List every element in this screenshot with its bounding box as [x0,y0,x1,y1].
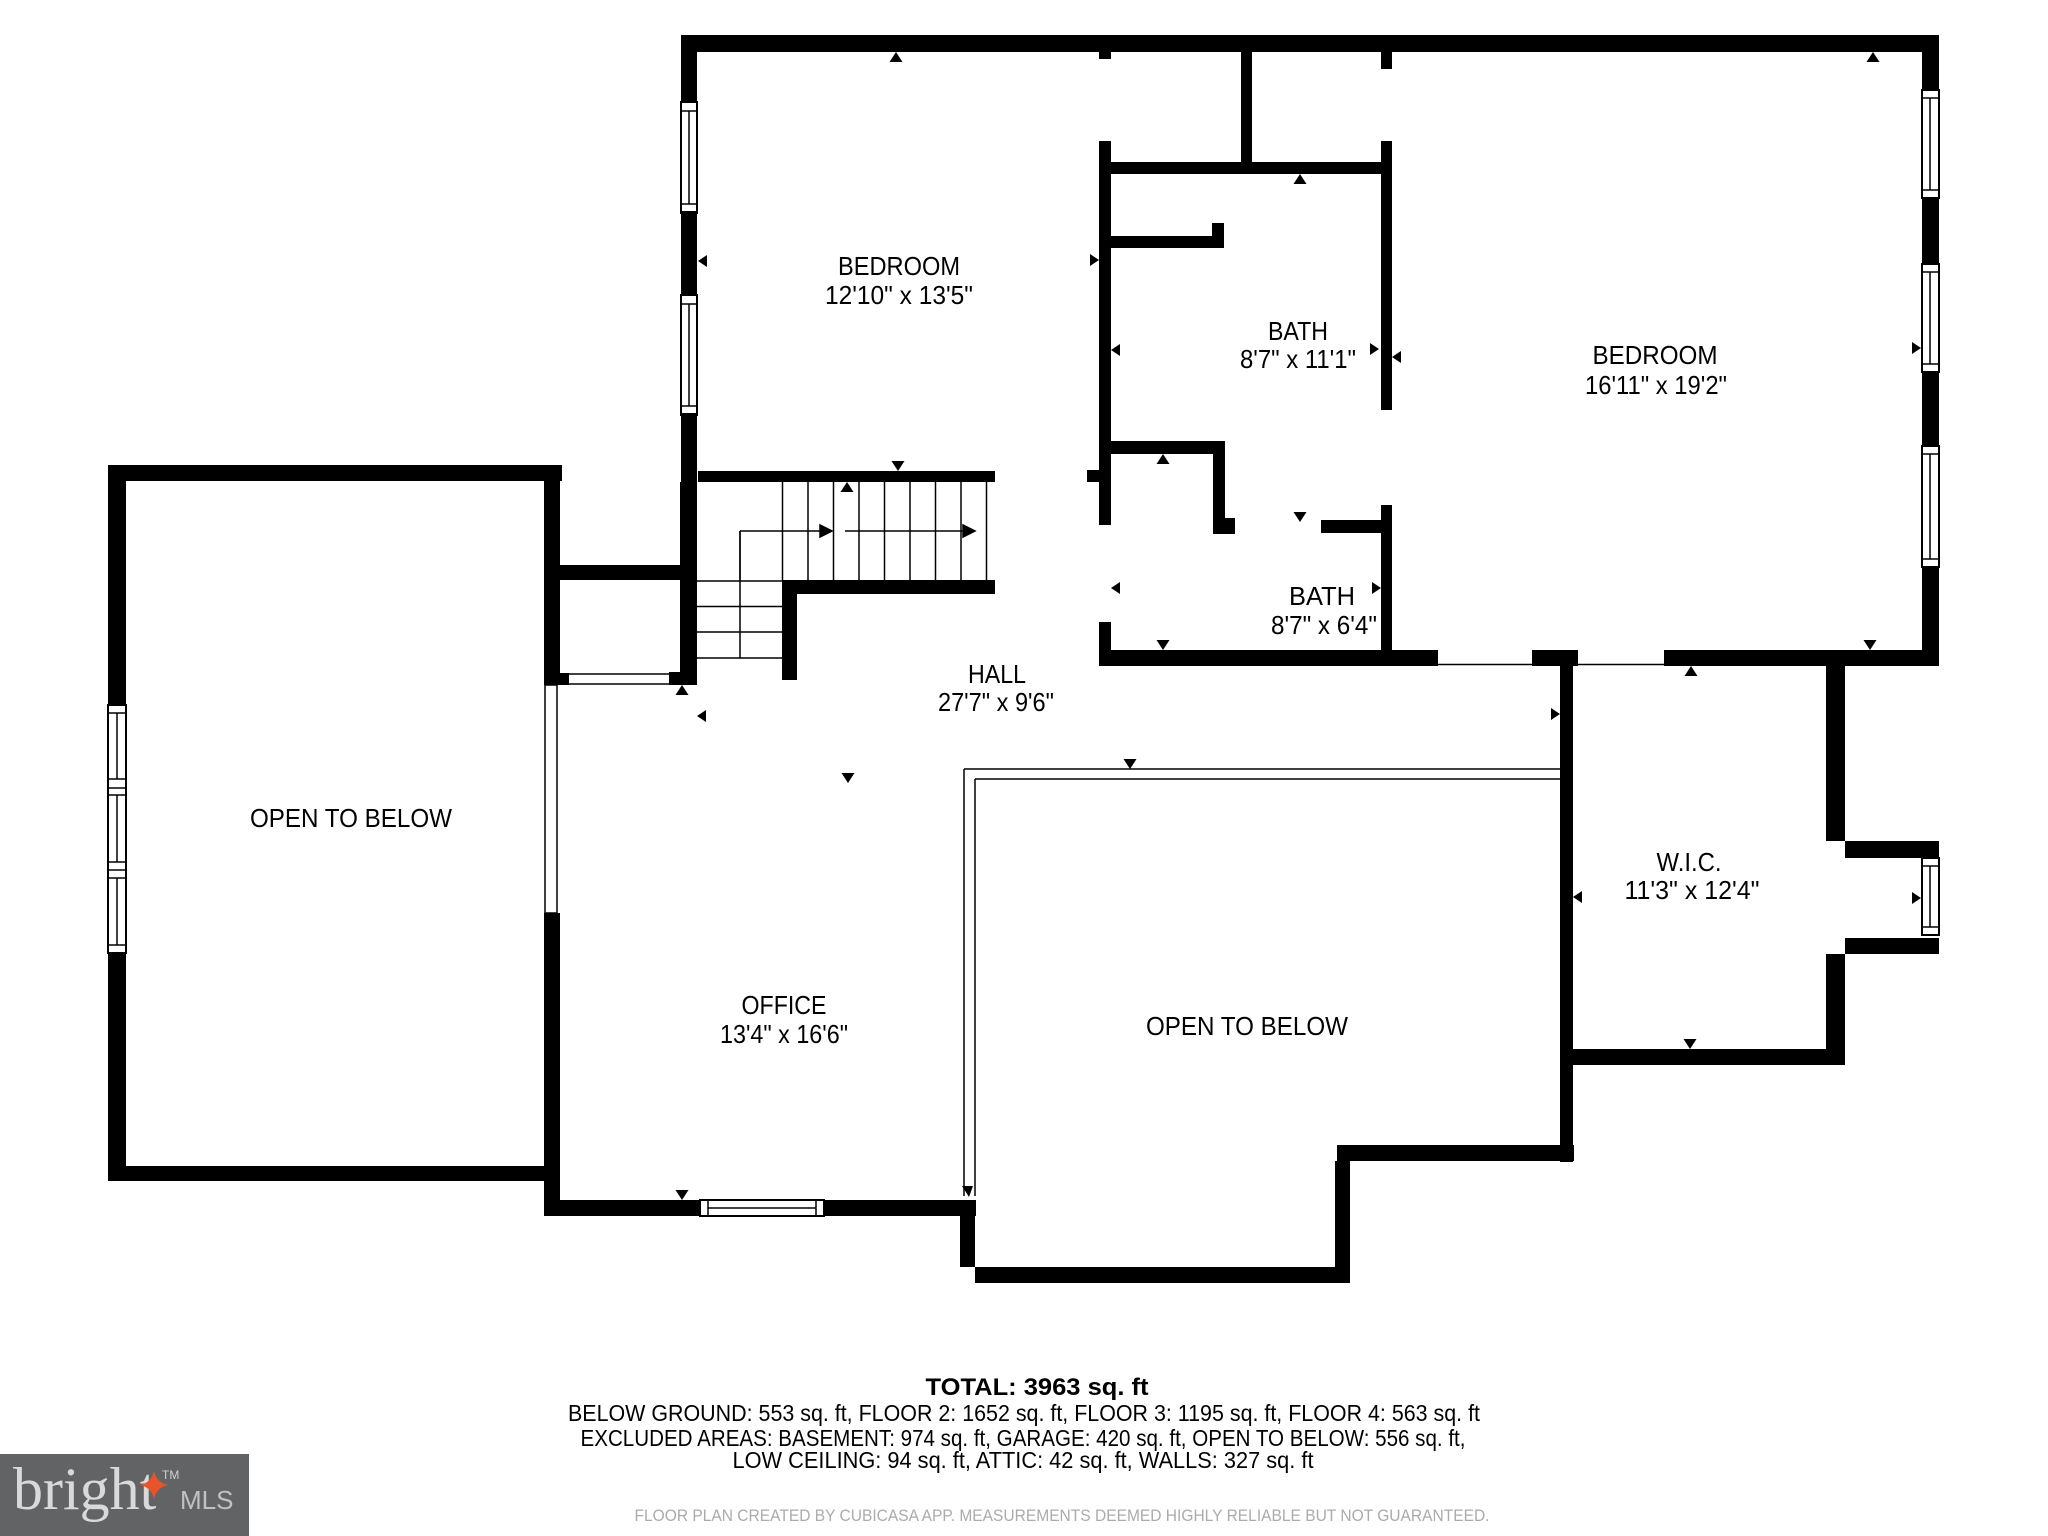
svg-text:MLS: MLS [180,1485,233,1515]
svg-text:BELOW GROUND: 553 sq. ft, FLOO: BELOW GROUND: 553 sq. ft, FLOOR 2: 1652 … [568,1400,1481,1426]
svg-text:LOW CEILING: 94 sq. ft, ATTIC:: LOW CEILING: 94 sq. ft, ATTIC: 42 sq. ft… [733,1447,1315,1473]
svg-text:BEDROOM: BEDROOM [1593,340,1718,370]
svg-text:bright: bright [13,1456,157,1522]
svg-text:OPEN TO BELOW: OPEN TO BELOW [250,803,452,833]
svg-text:HALL: HALL [968,659,1026,689]
svg-text:OFFICE: OFFICE [742,990,827,1020]
svg-text:BATH: BATH [1289,581,1355,611]
svg-text:TM: TM [162,1468,179,1482]
svg-text:8'7" x 11'1": 8'7" x 11'1" [1240,344,1356,374]
svg-text:12'10" x 13'5": 12'10" x 13'5" [825,280,973,310]
svg-text:FLOOR PLAN CREATED BY CUBICASA: FLOOR PLAN CREATED BY CUBICASA APP. MEAS… [635,1506,1490,1525]
svg-text:8'7" x 6'4": 8'7" x 6'4" [1271,610,1377,640]
svg-text:11'3" x 12'4": 11'3" x 12'4" [1625,875,1760,905]
svg-text:27'7" x 9'6": 27'7" x 9'6" [938,687,1054,717]
svg-text:16'11" x 19'2": 16'11" x 19'2" [1585,370,1727,400]
svg-text:BATH: BATH [1268,316,1328,346]
svg-text:W.I.C.: W.I.C. [1657,847,1722,877]
svg-text:BEDROOM: BEDROOM [838,251,960,281]
svg-text:13'4" x 16'6": 13'4" x 16'6" [720,1019,848,1049]
svg-text:OPEN TO BELOW: OPEN TO BELOW [1146,1011,1348,1041]
svg-text:TOTAL: 3963 sq. ft: TOTAL: 3963 sq. ft [926,1374,1149,1401]
